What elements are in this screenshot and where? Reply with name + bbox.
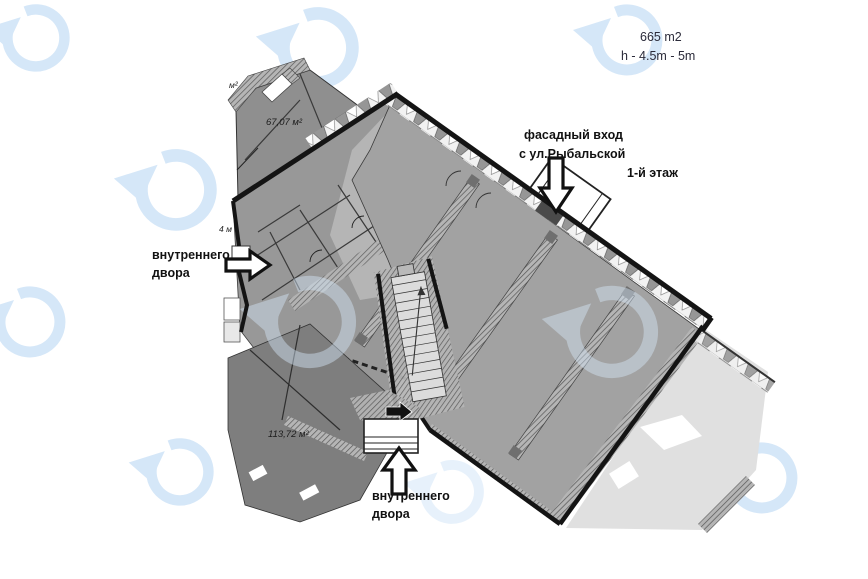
floorplan-page: 665 m2 h - 4.5m - 5m фасадный вход с ул.…: [0, 0, 868, 579]
height-stat-label: h - 4.5m - 5m: [621, 49, 695, 63]
floorplan-canvas: 665 m2 h - 4.5m - 5m фасадный вход с ул.…: [0, 0, 868, 579]
facade-entrance-label-line1: фасадный вход: [524, 128, 623, 142]
corner-area-label: м²: [229, 80, 239, 90]
facade-entrance-label-line2: с ул.Рыбальской: [519, 147, 625, 161]
courtyard-left-label-line2: двора: [152, 266, 191, 280]
courtyard-left-label-line1: внутреннего: [152, 248, 230, 262]
floor-label: 1-й этаж: [627, 166, 678, 180]
area-stat-label: 665 m2: [640, 30, 682, 44]
courtyard-bottom-label-line1: внутреннего: [372, 489, 450, 503]
room-area-label-113: 113,72 м²: [268, 429, 310, 440]
room-area-label-67: 67,07 м²: [266, 117, 303, 128]
courtyard-bottom-label-line2: двора: [372, 507, 411, 521]
edge-dim-label: 4 м: [219, 224, 232, 234]
